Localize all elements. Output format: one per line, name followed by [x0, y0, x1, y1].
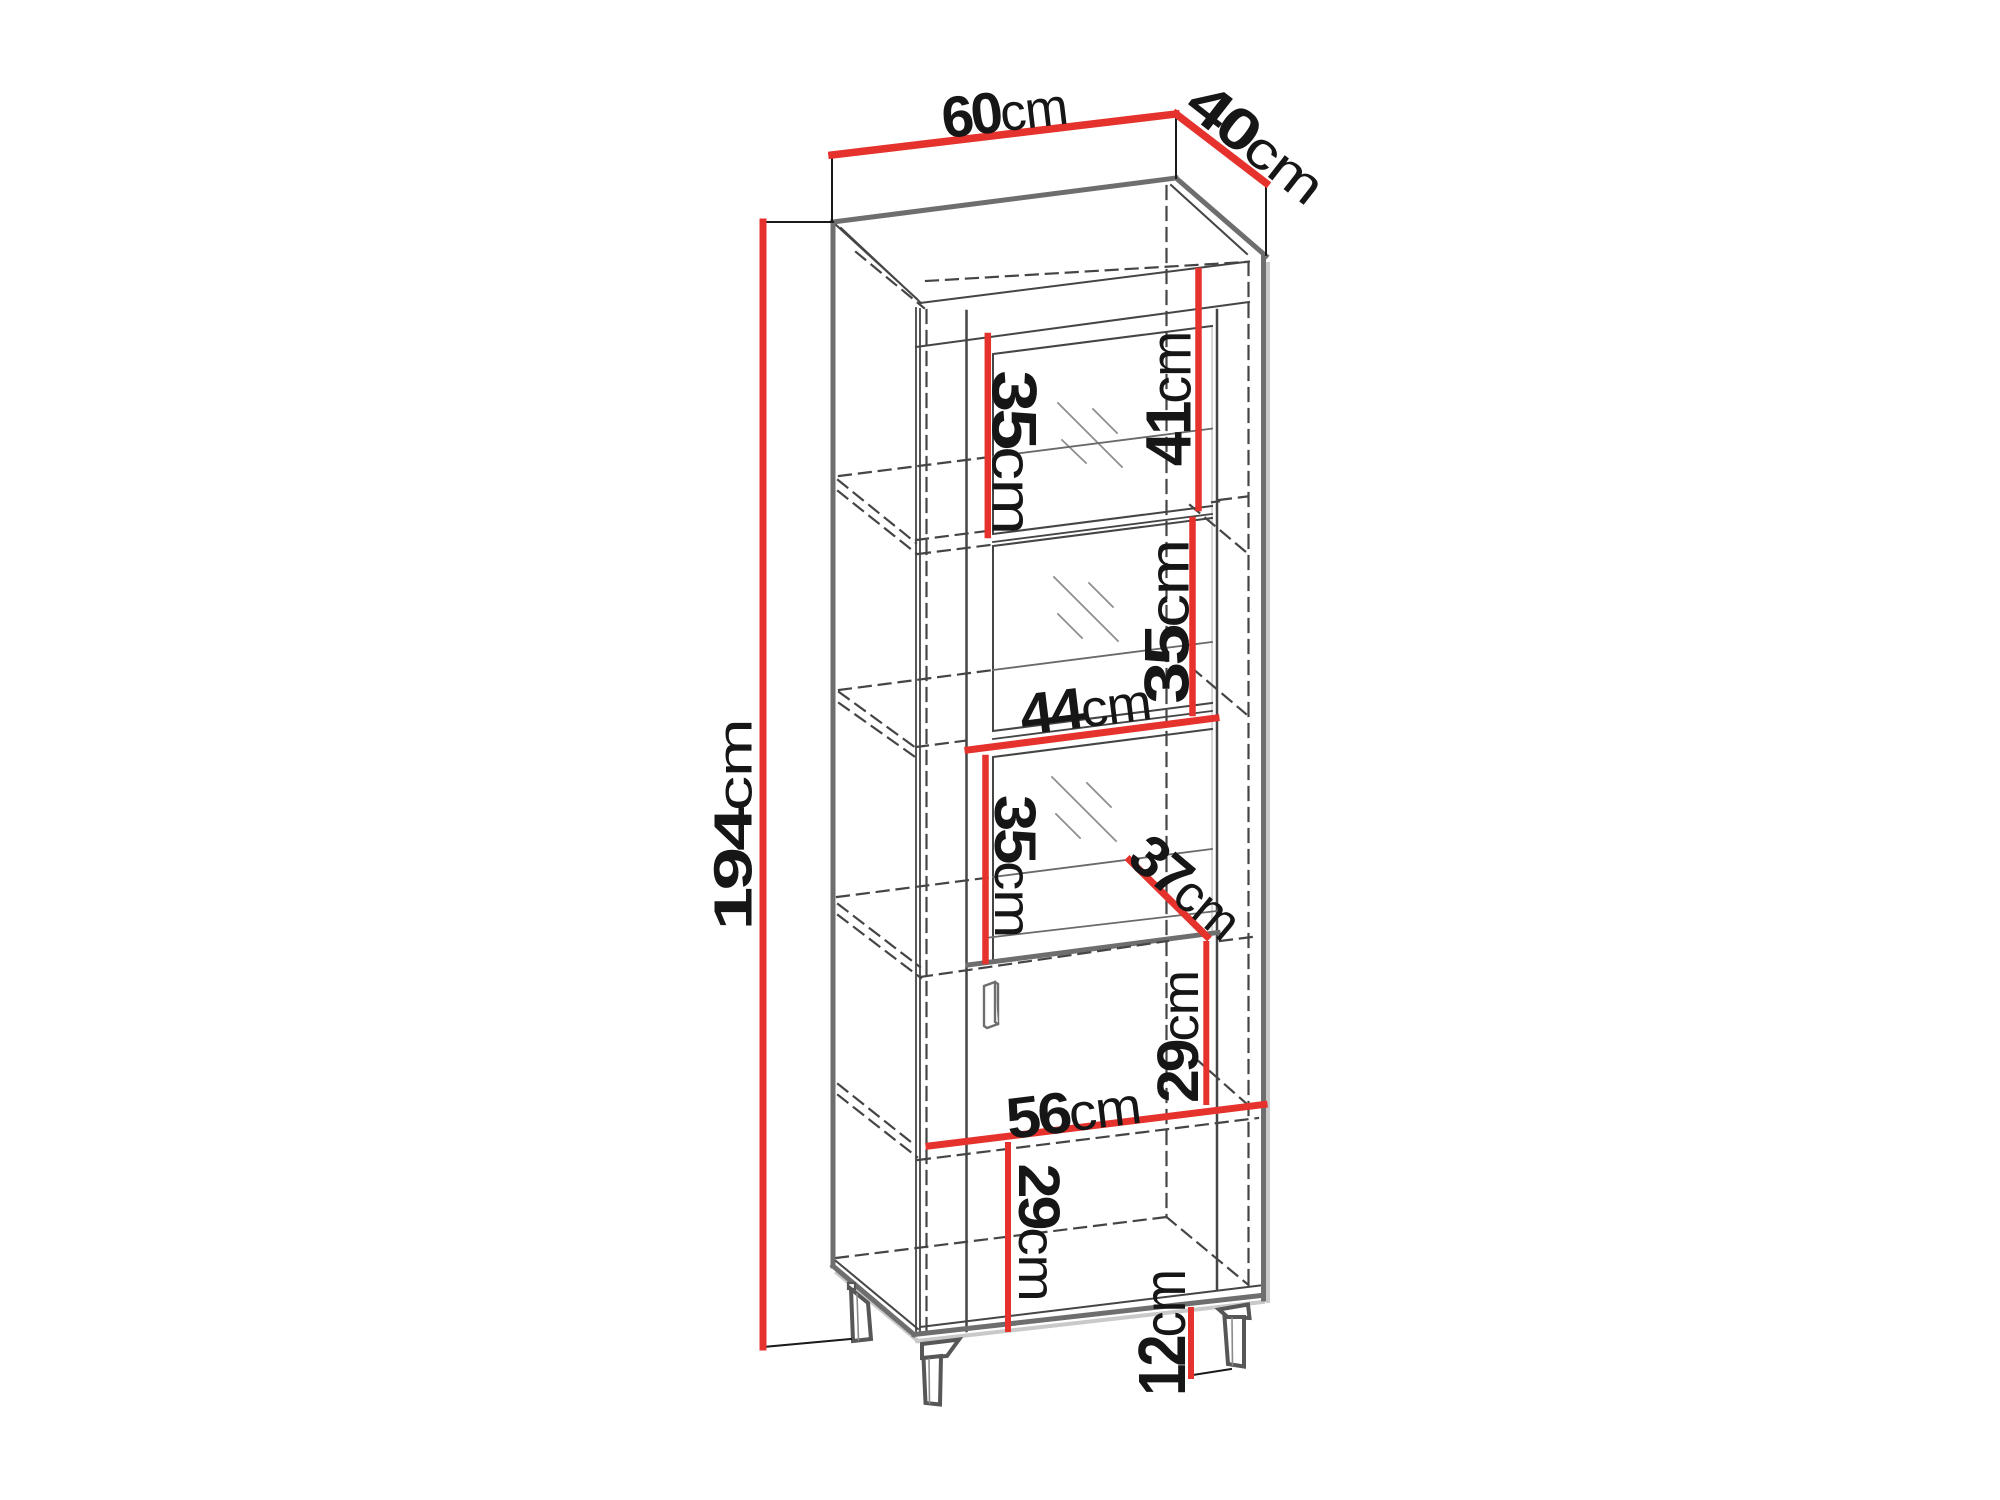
svg-text:29cm: 29cm: [1007, 1163, 1072, 1300]
svg-text:29cm: 29cm: [1145, 971, 1210, 1103]
svg-text:12cm: 12cm: [1125, 1270, 1200, 1396]
svg-text:35cm: 35cm: [982, 795, 1047, 937]
svg-text:41cm: 41cm: [1133, 332, 1204, 467]
svg-text:35cm: 35cm: [979, 370, 1049, 534]
svg-text:194cm: 194cm: [704, 720, 763, 931]
